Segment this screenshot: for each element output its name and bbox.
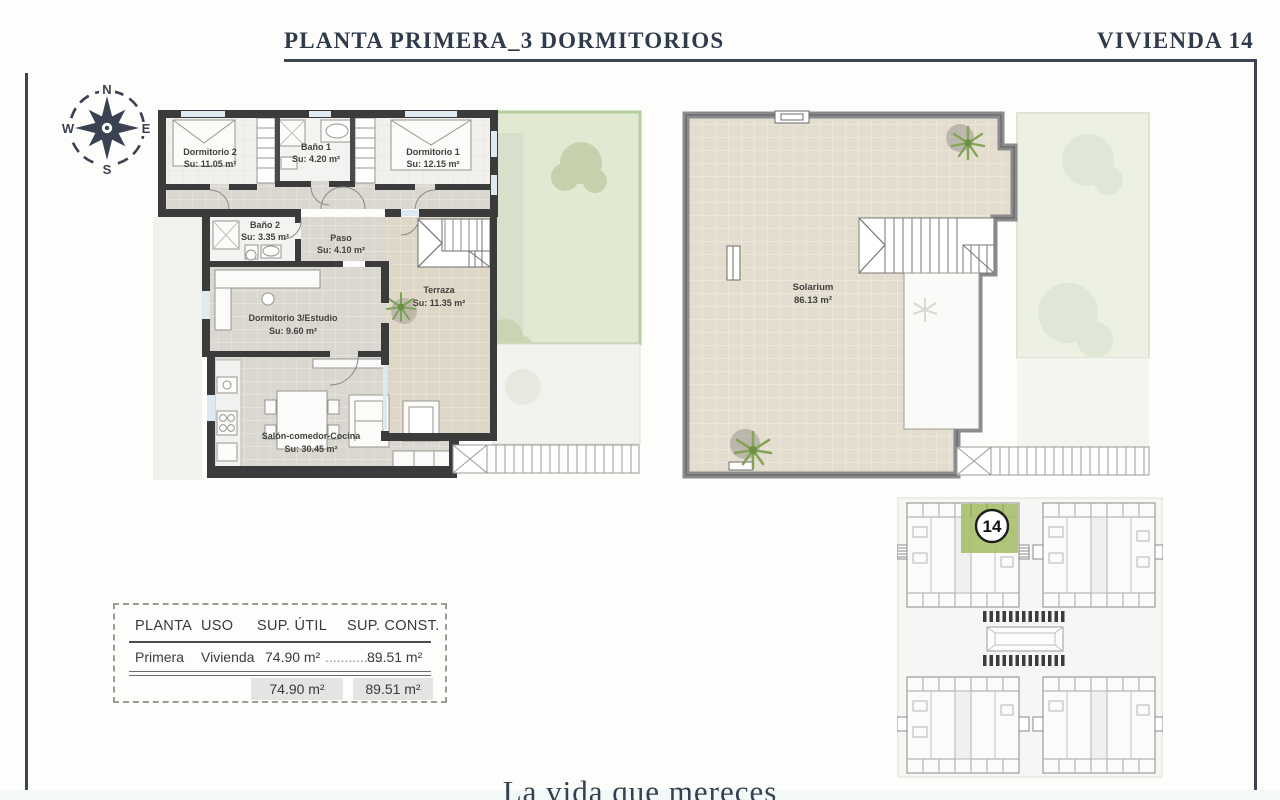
header-underline xyxy=(129,641,431,643)
solarium-stairs xyxy=(859,218,994,273)
room-name: Paso xyxy=(330,233,352,243)
compass-east-label: E xyxy=(142,121,151,136)
unit-number-label: 14 xyxy=(983,517,1002,536)
frame-left-border xyxy=(25,73,28,800)
room-name: Salón-comedor-Cocina xyxy=(262,431,362,441)
exterior-stairs xyxy=(453,445,639,473)
garden-area xyxy=(487,112,640,444)
site-block xyxy=(1033,503,1163,607)
site-block xyxy=(897,677,1029,773)
room-name: Solarium xyxy=(793,282,834,293)
total-sup-util: 74.90 m² xyxy=(251,678,343,700)
interior-stairs xyxy=(418,219,490,267)
surface-table: PLANTA USO SUP. ÚTIL SUP. CONST. Primera… xyxy=(113,603,447,703)
room-name: Dormitorio 1 xyxy=(406,147,460,157)
room-area: Su: 9.60 m² xyxy=(269,326,317,336)
room-area: Su: 30.45 m² xyxy=(284,444,337,454)
room-area: Su: 4.10 m² xyxy=(317,245,365,255)
col-header-uso: USO xyxy=(201,618,233,634)
col-header-sup-util: SUP. ÚTIL xyxy=(257,618,327,634)
exterior-stairs xyxy=(957,447,1149,475)
pool xyxy=(987,627,1063,651)
floor-plan: Dormitorio 2 Su: 11.05 m² Baño 1 Su: 4.2… xyxy=(153,95,643,500)
room-name: Dormitorio 3/Estudio xyxy=(248,313,338,323)
cell-uso: Vivienda xyxy=(201,649,254,665)
cell-planta: Primera xyxy=(135,649,184,665)
garden-faded xyxy=(1017,113,1149,473)
total-sup-const: 89.51 m² xyxy=(353,678,433,700)
tagline: La vida que mereces xyxy=(0,774,1280,800)
room-name: Baño 1 xyxy=(301,142,331,152)
floor-plan-sheet: PLANTA PRIMERA_3 DORMITORIOS VIVIENDA 14… xyxy=(0,0,1280,800)
header-rule xyxy=(284,59,1257,62)
solarium-plan: Solarium 86.13 m² xyxy=(663,98,1163,493)
page-title: PLANTA PRIMERA_3 DORMITORIOS xyxy=(284,28,724,54)
room-name: Dormitorio 2 xyxy=(183,147,237,157)
compass-west-label: W xyxy=(62,121,75,136)
site-plan: 14 xyxy=(897,497,1163,778)
unit-title: VIVIENDA 14 xyxy=(1097,28,1254,54)
room-name: Terraza xyxy=(423,285,455,295)
room-name: Baño 2 xyxy=(250,220,280,230)
cell-sup-util: 74.90 m² xyxy=(265,649,320,665)
compass-south-label: S xyxy=(103,162,112,177)
col-header-planta: PLANTA xyxy=(135,618,192,634)
room-area: Su: 11.05 m² xyxy=(184,159,237,169)
totals-divider xyxy=(129,671,431,676)
col-header-sup-const: SUP. CONST. xyxy=(347,618,439,634)
frame-right-border xyxy=(1254,59,1257,800)
cell-sup-const: 89.51 m² xyxy=(367,649,422,665)
room-area: Su: 4.20 m² xyxy=(292,154,340,164)
room-area: Su: 11.35 m² xyxy=(413,298,466,308)
plot-left xyxy=(153,217,202,480)
courtyard xyxy=(904,273,979,429)
room-area: Su: 3.35 m² xyxy=(241,232,289,242)
room-area: 86.13 m² xyxy=(794,295,832,306)
room-area: Su: 12.15 m² xyxy=(406,159,459,169)
faint-tree-icon xyxy=(505,369,541,405)
compass-north-label: N xyxy=(102,82,111,97)
site-block xyxy=(1033,677,1163,773)
compass-rose: N E S W xyxy=(57,78,157,178)
